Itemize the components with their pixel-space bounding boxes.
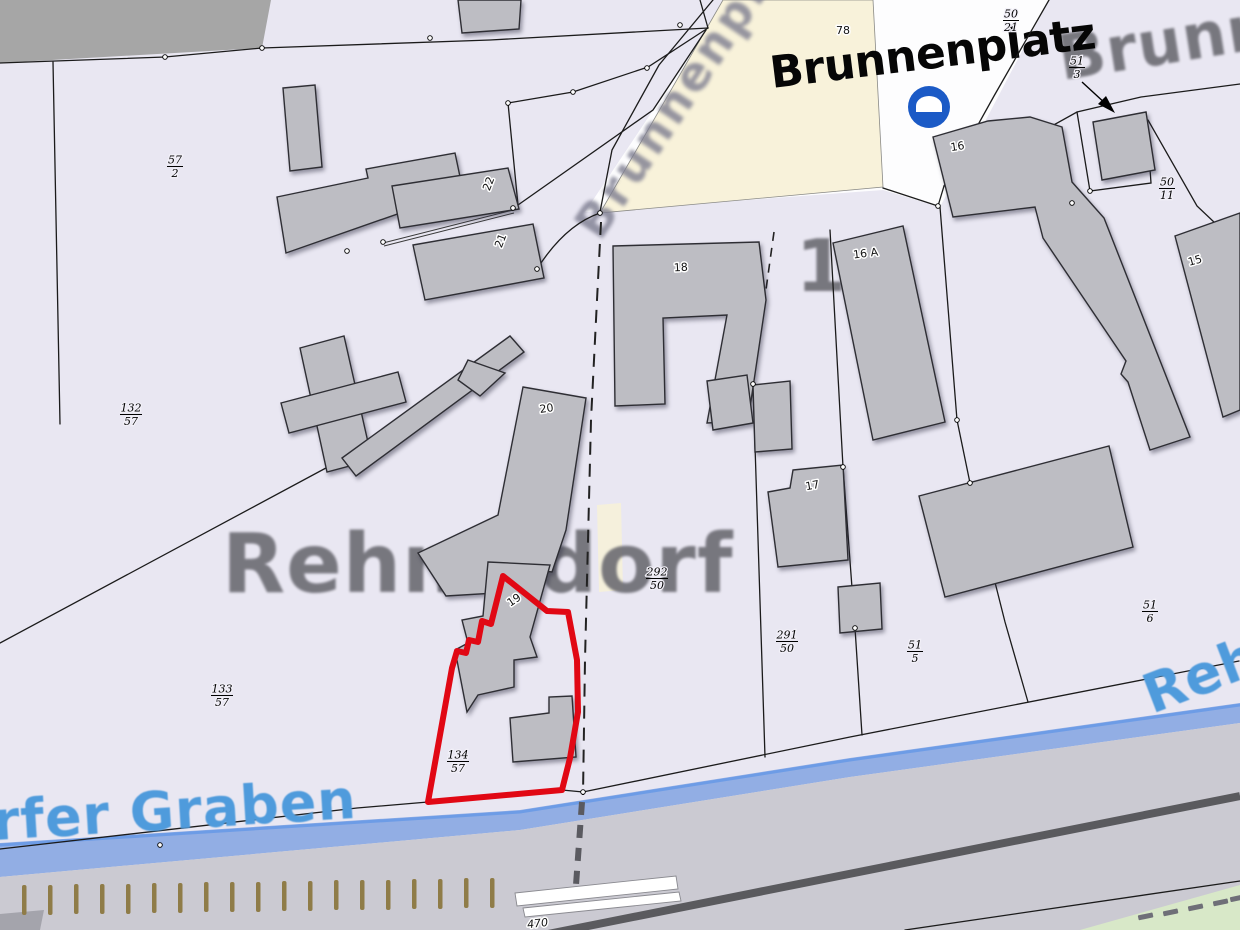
- building-small-2: [753, 381, 792, 452]
- svg-text:5: 5: [912, 652, 919, 665]
- svg-text:11: 11: [1160, 189, 1174, 202]
- svg-text:21: 21: [1003, 21, 1018, 34]
- building-top-edge: [458, 0, 521, 33]
- svg-text:292: 292: [646, 566, 668, 579]
- parcel-label-50-11: 50 11: [1159, 176, 1175, 203]
- svg-text:133: 133: [212, 683, 233, 696]
- svg-text:50: 50: [1004, 8, 1018, 21]
- cadastral-map[interactable]: Rehmsdorf Brunnenpl Brunnen 1 Brunnenpla…: [0, 0, 1240, 930]
- house-number-470: 470: [526, 916, 548, 930]
- svg-text:291: 291: [776, 629, 798, 642]
- house-number-20: 20: [539, 401, 555, 416]
- svg-text:50: 50: [780, 642, 794, 655]
- svg-text:50: 50: [1160, 176, 1174, 189]
- svg-text:3: 3: [1074, 68, 1081, 81]
- building-51-3: [1093, 112, 1155, 180]
- svg-text:134: 134: [448, 749, 469, 762]
- svg-text:51: 51: [908, 639, 922, 652]
- house-number-18: 18: [673, 261, 688, 275]
- svg-text:51: 51: [1143, 599, 1157, 612]
- house-number-78: 78: [836, 24, 850, 37]
- parcel-label-50-21: 50 21: [1003, 8, 1019, 35]
- svg-text:50: 50: [650, 579, 664, 592]
- svg-text:57: 57: [215, 696, 229, 709]
- svg-text:132: 132: [121, 402, 142, 415]
- svg-text:6: 6: [1147, 612, 1154, 625]
- no-entry-sign-icon: [908, 86, 950, 128]
- svg-text:57: 57: [168, 154, 182, 167]
- svg-text:57: 57: [124, 415, 138, 428]
- building-small-topleft: [283, 85, 322, 171]
- svg-text:57: 57: [451, 762, 465, 775]
- svg-text:51: 51: [1070, 55, 1084, 68]
- building-square-small: [838, 583, 882, 633]
- house-number-16: 16: [950, 139, 966, 154]
- svg-text:2: 2: [171, 167, 179, 180]
- building-small-1: [707, 375, 753, 430]
- house-number-17: 17: [804, 478, 820, 493]
